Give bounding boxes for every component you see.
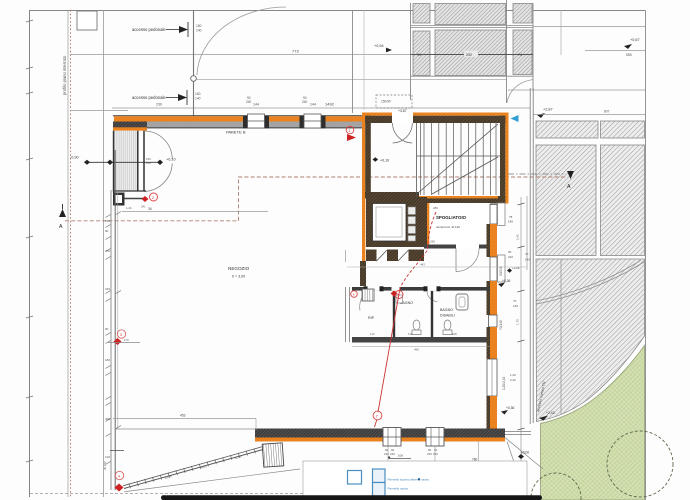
svg-text:280: 280 bbox=[433, 206, 438, 210]
svg-text:405: 405 bbox=[105, 417, 110, 421]
svg-text:uscita: uscita bbox=[421, 478, 429, 482]
svg-text:140: 140 bbox=[508, 220, 513, 224]
svg-text:292: 292 bbox=[466, 53, 472, 57]
svg-text:240: 240 bbox=[302, 100, 308, 104]
svg-text:Pannello acceso allarme: Pannello acceso allarme bbox=[388, 478, 421, 482]
svg-text:75: 75 bbox=[509, 215, 513, 219]
svg-text:A: A bbox=[567, 184, 571, 190]
svg-text:RIP.: RIP. bbox=[368, 316, 375, 320]
svg-text:+2,87: +2,87 bbox=[543, 108, 553, 112]
svg-text:90: 90 bbox=[105, 327, 109, 331]
svg-text:7: 7 bbox=[376, 414, 378, 418]
svg-text:240: 240 bbox=[246, 100, 252, 104]
svg-text:555: 555 bbox=[626, 53, 632, 57]
svg-text:70/140: 70/140 bbox=[499, 320, 503, 330]
svg-text:1492: 1492 bbox=[325, 102, 335, 107]
svg-text:1,20: 1,20 bbox=[510, 373, 516, 377]
svg-text:170: 170 bbox=[124, 338, 129, 342]
svg-text:90: 90 bbox=[105, 229, 109, 233]
svg-text:807: 807 bbox=[604, 110, 610, 114]
svg-text:30 150: 30 150 bbox=[103, 461, 107, 470]
svg-text:accesso pedonale: accesso pedonale bbox=[132, 95, 166, 100]
svg-text:+0,10: +0,10 bbox=[166, 158, 176, 162]
svg-text:2,42: 2,42 bbox=[516, 234, 520, 240]
svg-text:+2,43: +2,43 bbox=[546, 411, 555, 415]
svg-text:240: 240 bbox=[384, 452, 389, 456]
svg-text:1,70: 1,70 bbox=[516, 319, 520, 325]
svg-text:accesso pedonale: accesso pedonale bbox=[132, 27, 166, 32]
svg-text:A: A bbox=[59, 224, 63, 230]
svg-text:SN: SN bbox=[141, 205, 145, 209]
svg-text:4: 4 bbox=[118, 474, 120, 478]
svg-text:180: 180 bbox=[105, 358, 110, 362]
svg-text:230: 230 bbox=[156, 103, 162, 107]
svg-text:110: 110 bbox=[408, 332, 413, 336]
svg-text:1: 1 bbox=[349, 129, 351, 133]
svg-text:150: 150 bbox=[195, 92, 201, 96]
svg-text:2,42: 2,42 bbox=[510, 378, 516, 382]
svg-text:+3,87: +3,87 bbox=[398, 109, 407, 113]
svg-text:91: 91 bbox=[417, 53, 421, 57]
svg-text:h = 3,00: h = 3,00 bbox=[232, 275, 245, 279]
svg-text:773: 773 bbox=[292, 49, 299, 54]
svg-text:1,24: 1,24 bbox=[126, 206, 132, 210]
svg-text:-0,90: -0,90 bbox=[70, 156, 79, 160]
svg-text:460: 460 bbox=[414, 348, 419, 352]
svg-text:+0,67: +0,67 bbox=[630, 38, 640, 42]
svg-text:+2,06: +2,06 bbox=[512, 266, 520, 270]
svg-text:150: 150 bbox=[105, 219, 110, 223]
svg-text:3: 3 bbox=[120, 333, 122, 337]
svg-text:74: 74 bbox=[518, 53, 522, 57]
svg-text:+0,94: +0,94 bbox=[374, 44, 384, 48]
svg-text:140: 140 bbox=[146, 161, 151, 165]
svg-text:70: 70 bbox=[513, 299, 517, 303]
svg-text:240: 240 bbox=[427, 452, 432, 456]
svg-text:5: 5 bbox=[398, 293, 400, 297]
svg-text:±0,00: ±0,00 bbox=[521, 451, 529, 455]
svg-text:SPOGLIATOIO: SPOGLIATOIO bbox=[436, 215, 467, 220]
svg-text:profilo piano interrato: profilo piano interrato bbox=[62, 55, 67, 95]
svg-text:140: 140 bbox=[195, 97, 201, 101]
svg-text:470: 470 bbox=[105, 249, 110, 253]
svg-text:90/240: 90/240 bbox=[499, 266, 503, 276]
svg-text:1,20/2,42: 1,20/2,42 bbox=[502, 376, 506, 390]
svg-text:442: 442 bbox=[420, 263, 425, 267]
svg-text:NEGOZIO: NEGOZIO bbox=[228, 266, 250, 271]
svg-text:144: 144 bbox=[310, 103, 316, 107]
svg-text:280: 280 bbox=[430, 240, 435, 244]
svg-text:140: 140 bbox=[196, 29, 202, 33]
svg-text:DISABILI: DISABILI bbox=[440, 314, 455, 318]
svg-text:168: 168 bbox=[452, 332, 457, 336]
svg-text:110: 110 bbox=[370, 332, 375, 336]
svg-text:453: 453 bbox=[180, 414, 186, 418]
svg-text:BAGNO: BAGNO bbox=[440, 308, 453, 312]
svg-text:315: 315 bbox=[105, 287, 110, 291]
svg-text:144: 144 bbox=[253, 103, 259, 107]
svg-text:70: 70 bbox=[525, 252, 529, 256]
svg-text:90: 90 bbox=[508, 250, 512, 254]
svg-text:+0,10: +0,10 bbox=[380, 159, 389, 163]
svg-text:150/90: 150/90 bbox=[381, 100, 391, 104]
svg-text:240: 240 bbox=[390, 452, 395, 456]
svg-text:tenda funz. Ø 140: tenda funz. Ø 140 bbox=[436, 225, 460, 229]
svg-text:2: 2 bbox=[152, 196, 154, 200]
svg-text:PARETE B: PARETE B bbox=[226, 130, 246, 135]
svg-text:36: 36 bbox=[148, 207, 152, 211]
svg-text:240: 240 bbox=[508, 255, 513, 259]
svg-text:240: 240 bbox=[433, 452, 438, 456]
svg-text:+0,36: +0,36 bbox=[506, 406, 515, 410]
svg-text:120: 120 bbox=[105, 455, 110, 459]
svg-text:140: 140 bbox=[513, 304, 518, 308]
svg-text:150: 150 bbox=[196, 24, 202, 28]
svg-text:Pannello uscita: Pannello uscita bbox=[388, 487, 409, 491]
svg-text:+0,36: +0,36 bbox=[502, 279, 511, 283]
svg-text:140: 140 bbox=[525, 258, 530, 262]
svg-text:100: 100 bbox=[398, 454, 403, 458]
